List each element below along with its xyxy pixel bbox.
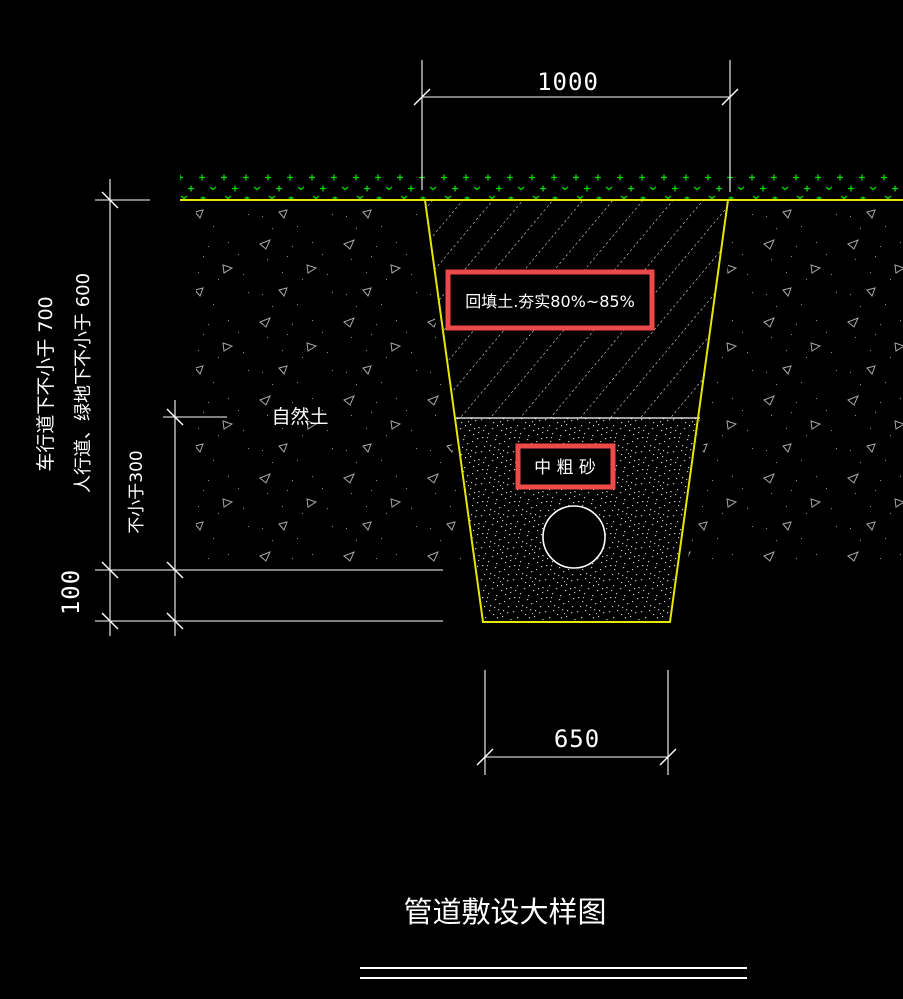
backfill-label: 回填土.夯实80%~85% — [465, 292, 635, 311]
cad-canvas: 回填土.夯实80%~85% 中 粗 砂 自然土 1000 650 车行道下不小于… — [0, 0, 903, 999]
sand-label: 中 粗 砂 — [534, 458, 596, 478]
natural-soil-label: 自然土 — [271, 406, 328, 428]
dim-cover-walk-label: 人行道、绿地下不小于 600 — [73, 273, 94, 493]
dim-sand-min-label: 不小于300 — [127, 450, 147, 533]
drawing-title: 管道敷设大样图 — [403, 895, 606, 929]
pipe-circle — [543, 506, 605, 568]
dim-top-value: 1000 — [537, 68, 599, 96]
dim-bedding-label: 100 — [57, 569, 85, 615]
dim-bottom-value: 650 — [554, 725, 600, 753]
grass-band — [180, 170, 903, 199]
pipe-trench-detail-drawing: 回填土.夯实80%~85% 中 粗 砂 自然土 1000 650 车行道下不小于… — [0, 0, 903, 999]
dim-cover-road-label: 车行道下不小于 700 — [35, 296, 57, 471]
